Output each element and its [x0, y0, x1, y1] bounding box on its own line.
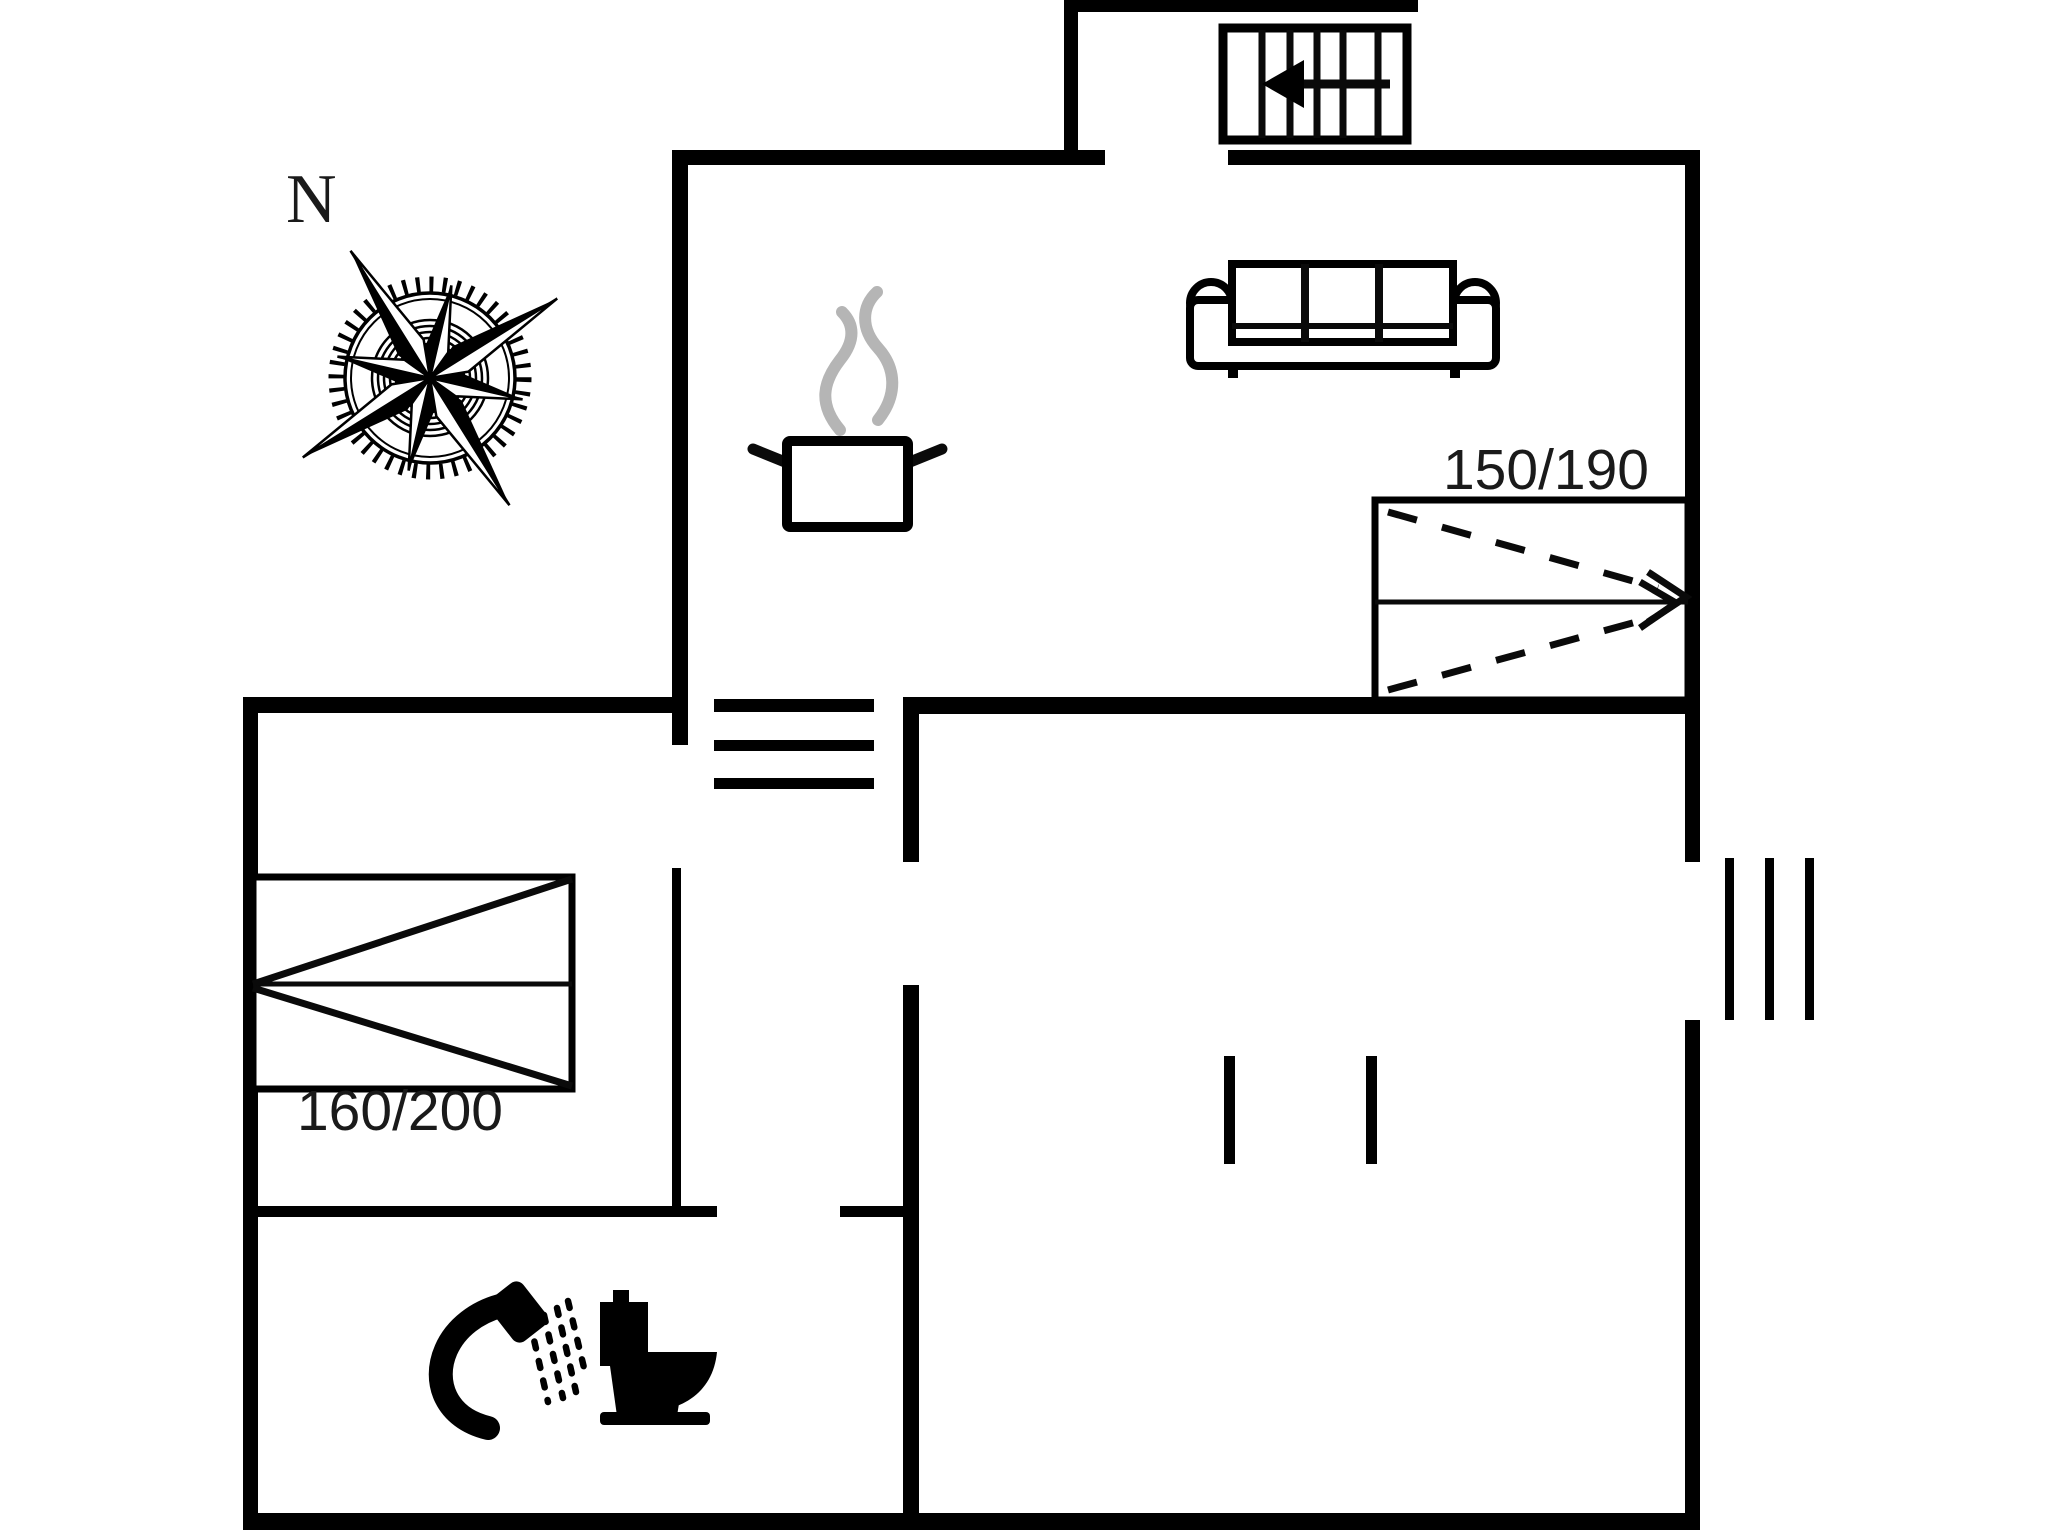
wall-segment — [1064, 0, 1418, 12]
sofa-icon — [1190, 264, 1496, 378]
wall-segment — [903, 985, 919, 1513]
double-bed-160-icon — [253, 877, 572, 1089]
floorplan-canvas: N 150/190 160/200 — [0, 0, 2048, 1536]
staircase-icon — [1223, 28, 1407, 140]
wall-segment — [243, 1513, 1700, 1530]
step-line — [714, 740, 874, 751]
steam-icon — [825, 292, 892, 430]
exterior-walls — [243, 0, 1700, 1530]
steps-icon — [714, 699, 874, 789]
wall-segment — [1685, 1020, 1700, 1530]
window-line — [1765, 858, 1774, 1020]
bed-size-label-living: 150/190 — [1443, 438, 1649, 502]
double-bed-150-icon — [1375, 500, 1688, 700]
step-line — [714, 778, 874, 789]
bed-size-label-bedroom: 160/200 — [297, 1079, 503, 1143]
mark-line — [1224, 1056, 1235, 1164]
floorplan-drawing: N 150/190 160/200 — [0, 0, 2048, 1536]
wall-segment — [250, 1206, 717, 1217]
wall-segment — [243, 697, 679, 713]
step-line — [714, 699, 874, 712]
wall-segment — [243, 697, 258, 1530]
compass-rose-icon: N — [286, 161, 565, 513]
wall-segment — [903, 697, 919, 862]
window-line — [1805, 858, 1814, 1020]
door-opening-marks — [1224, 1056, 1377, 1164]
wall-segment — [1064, 0, 1078, 162]
window-line — [1725, 858, 1734, 1020]
compass-north-label: N — [286, 161, 337, 238]
wall-segment — [672, 150, 688, 745]
wall-segment — [840, 1206, 903, 1217]
cooking-pot-icon — [753, 441, 942, 527]
shower-icon — [441, 1278, 585, 1428]
wall-segment — [1228, 150, 1700, 165]
wall-segment — [672, 150, 1105, 165]
mark-line — [1366, 1056, 1377, 1164]
window-triple-line-icon — [1725, 858, 1814, 1020]
wall-segment — [672, 868, 681, 1210]
toilet-icon — [600, 1290, 717, 1425]
